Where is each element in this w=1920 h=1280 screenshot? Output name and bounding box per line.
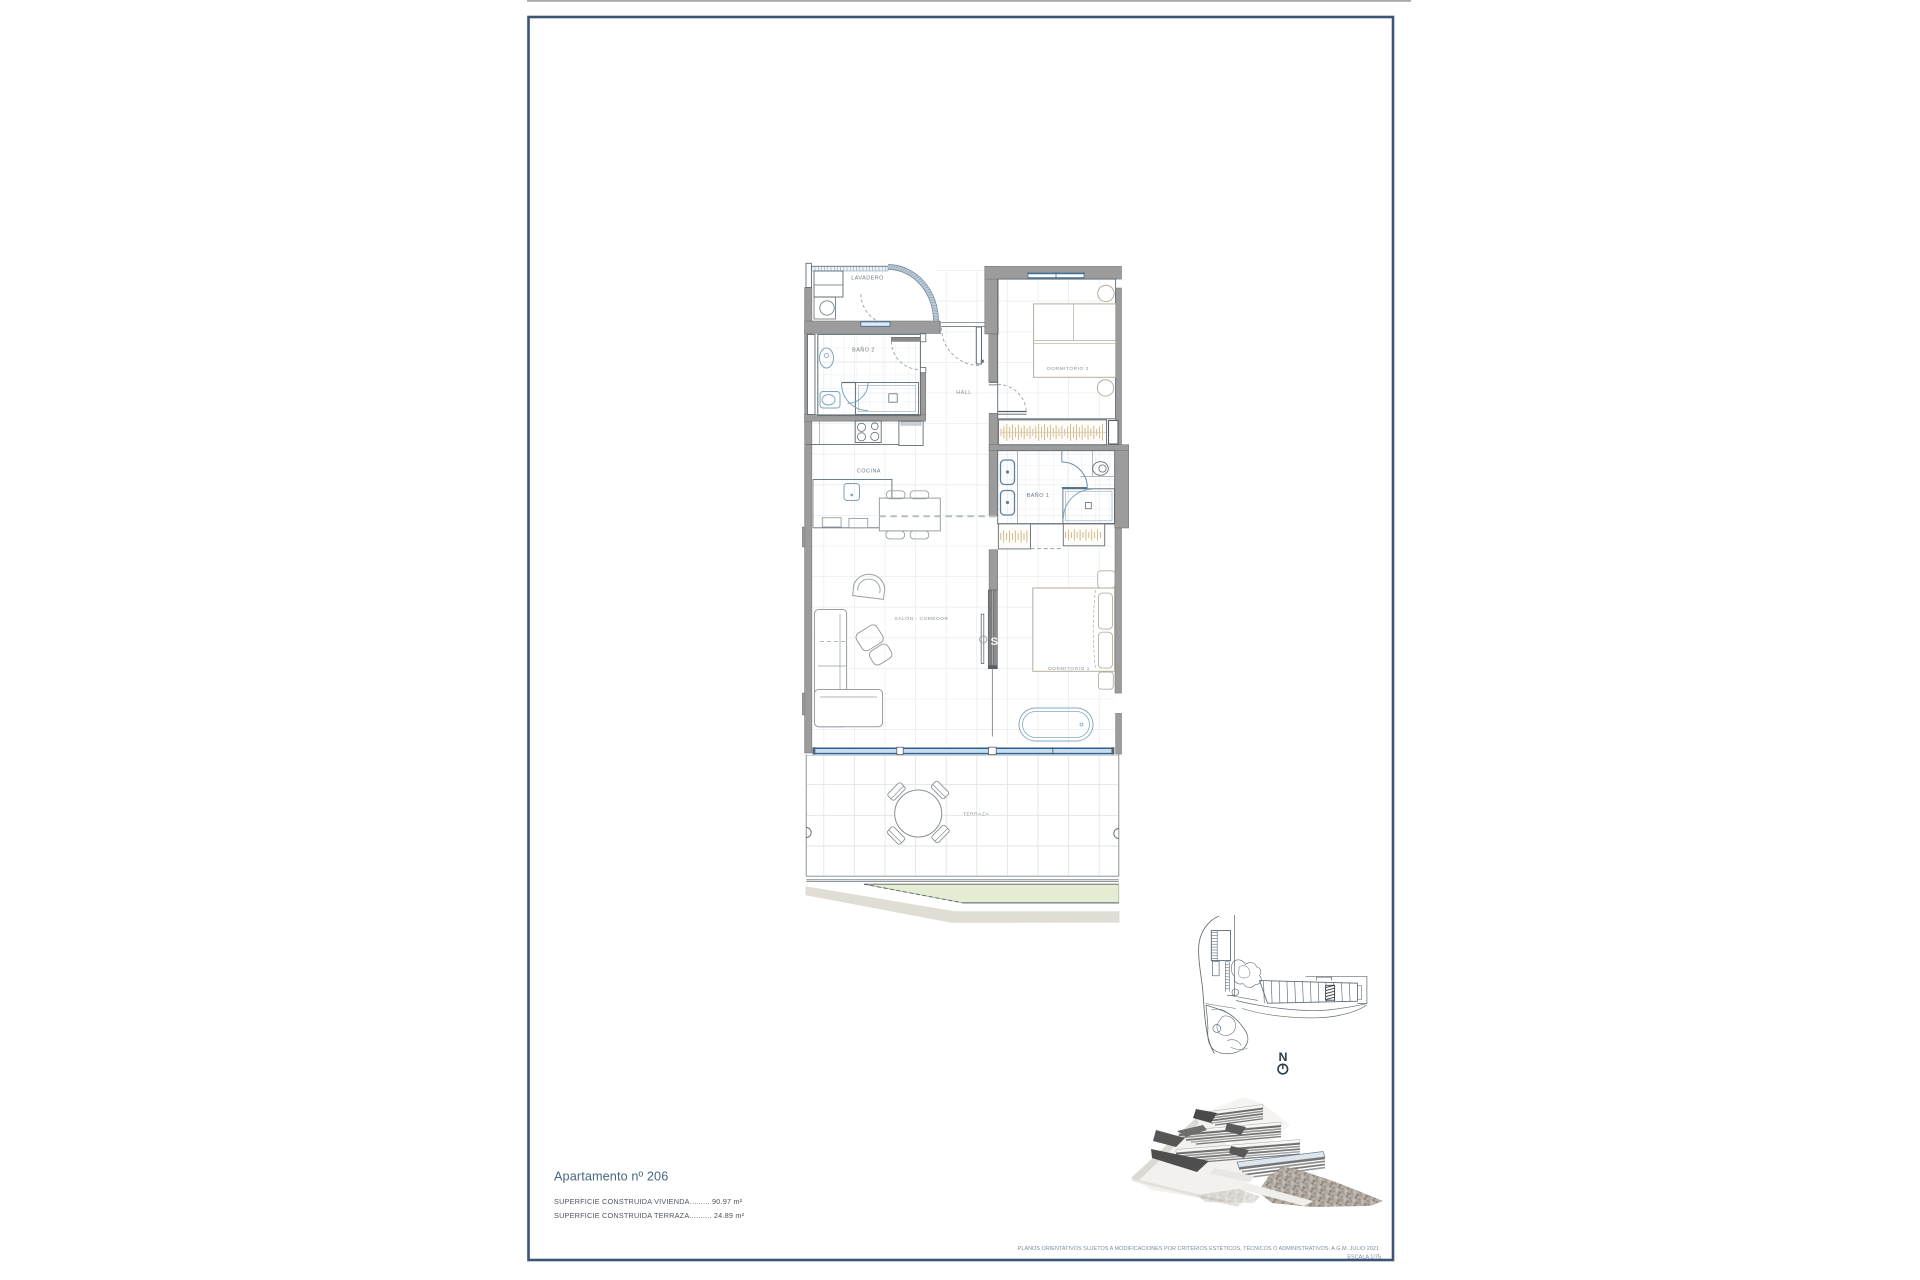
svg-text:PLANOS ORIENTATIVOS SUJETOS A: PLANOS ORIENTATIVOS SUJETOS A MODIFICACI… xyxy=(1018,1245,1379,1252)
svg-text:N: N xyxy=(1279,1050,1288,1064)
svg-text:TERRAZA: TERRAZA xyxy=(963,812,990,818)
svg-text:LAVADERO: LAVADERO xyxy=(851,276,884,282)
svg-text:BAÑO 2: BAÑO 2 xyxy=(852,347,875,354)
svg-text:Apartamento nº 206: Apartamento nº 206 xyxy=(554,1170,668,1184)
svg-text:HALL: HALL xyxy=(956,390,972,396)
svg-text:DORMITORIO 1: DORMITORIO 1 xyxy=(1048,666,1090,672)
svg-text:SUPERFICIE CONSTRUIDA TERRAZA.: SUPERFICIE CONSTRUIDA TERRAZA.......... … xyxy=(554,1211,745,1220)
svg-text:ESCALA 1/75: ESCALA 1/75 xyxy=(1347,1255,1381,1261)
svg-text:SUPERFICIE CONSTRUIDA VIVIENDA: SUPERFICIE CONSTRUIDA VIVIENDA......... … xyxy=(554,1197,743,1206)
svg-text:BAÑO 1: BAÑO 1 xyxy=(1027,492,1050,499)
svg-text:COCINA: COCINA xyxy=(857,469,881,475)
svg-text:SALÓN - COMEDOR: SALÓN - COMEDOR xyxy=(895,615,949,622)
svg-text:S: S xyxy=(991,636,998,648)
svg-text:DORMITORIO 2: DORMITORIO 2 xyxy=(1047,366,1089,372)
